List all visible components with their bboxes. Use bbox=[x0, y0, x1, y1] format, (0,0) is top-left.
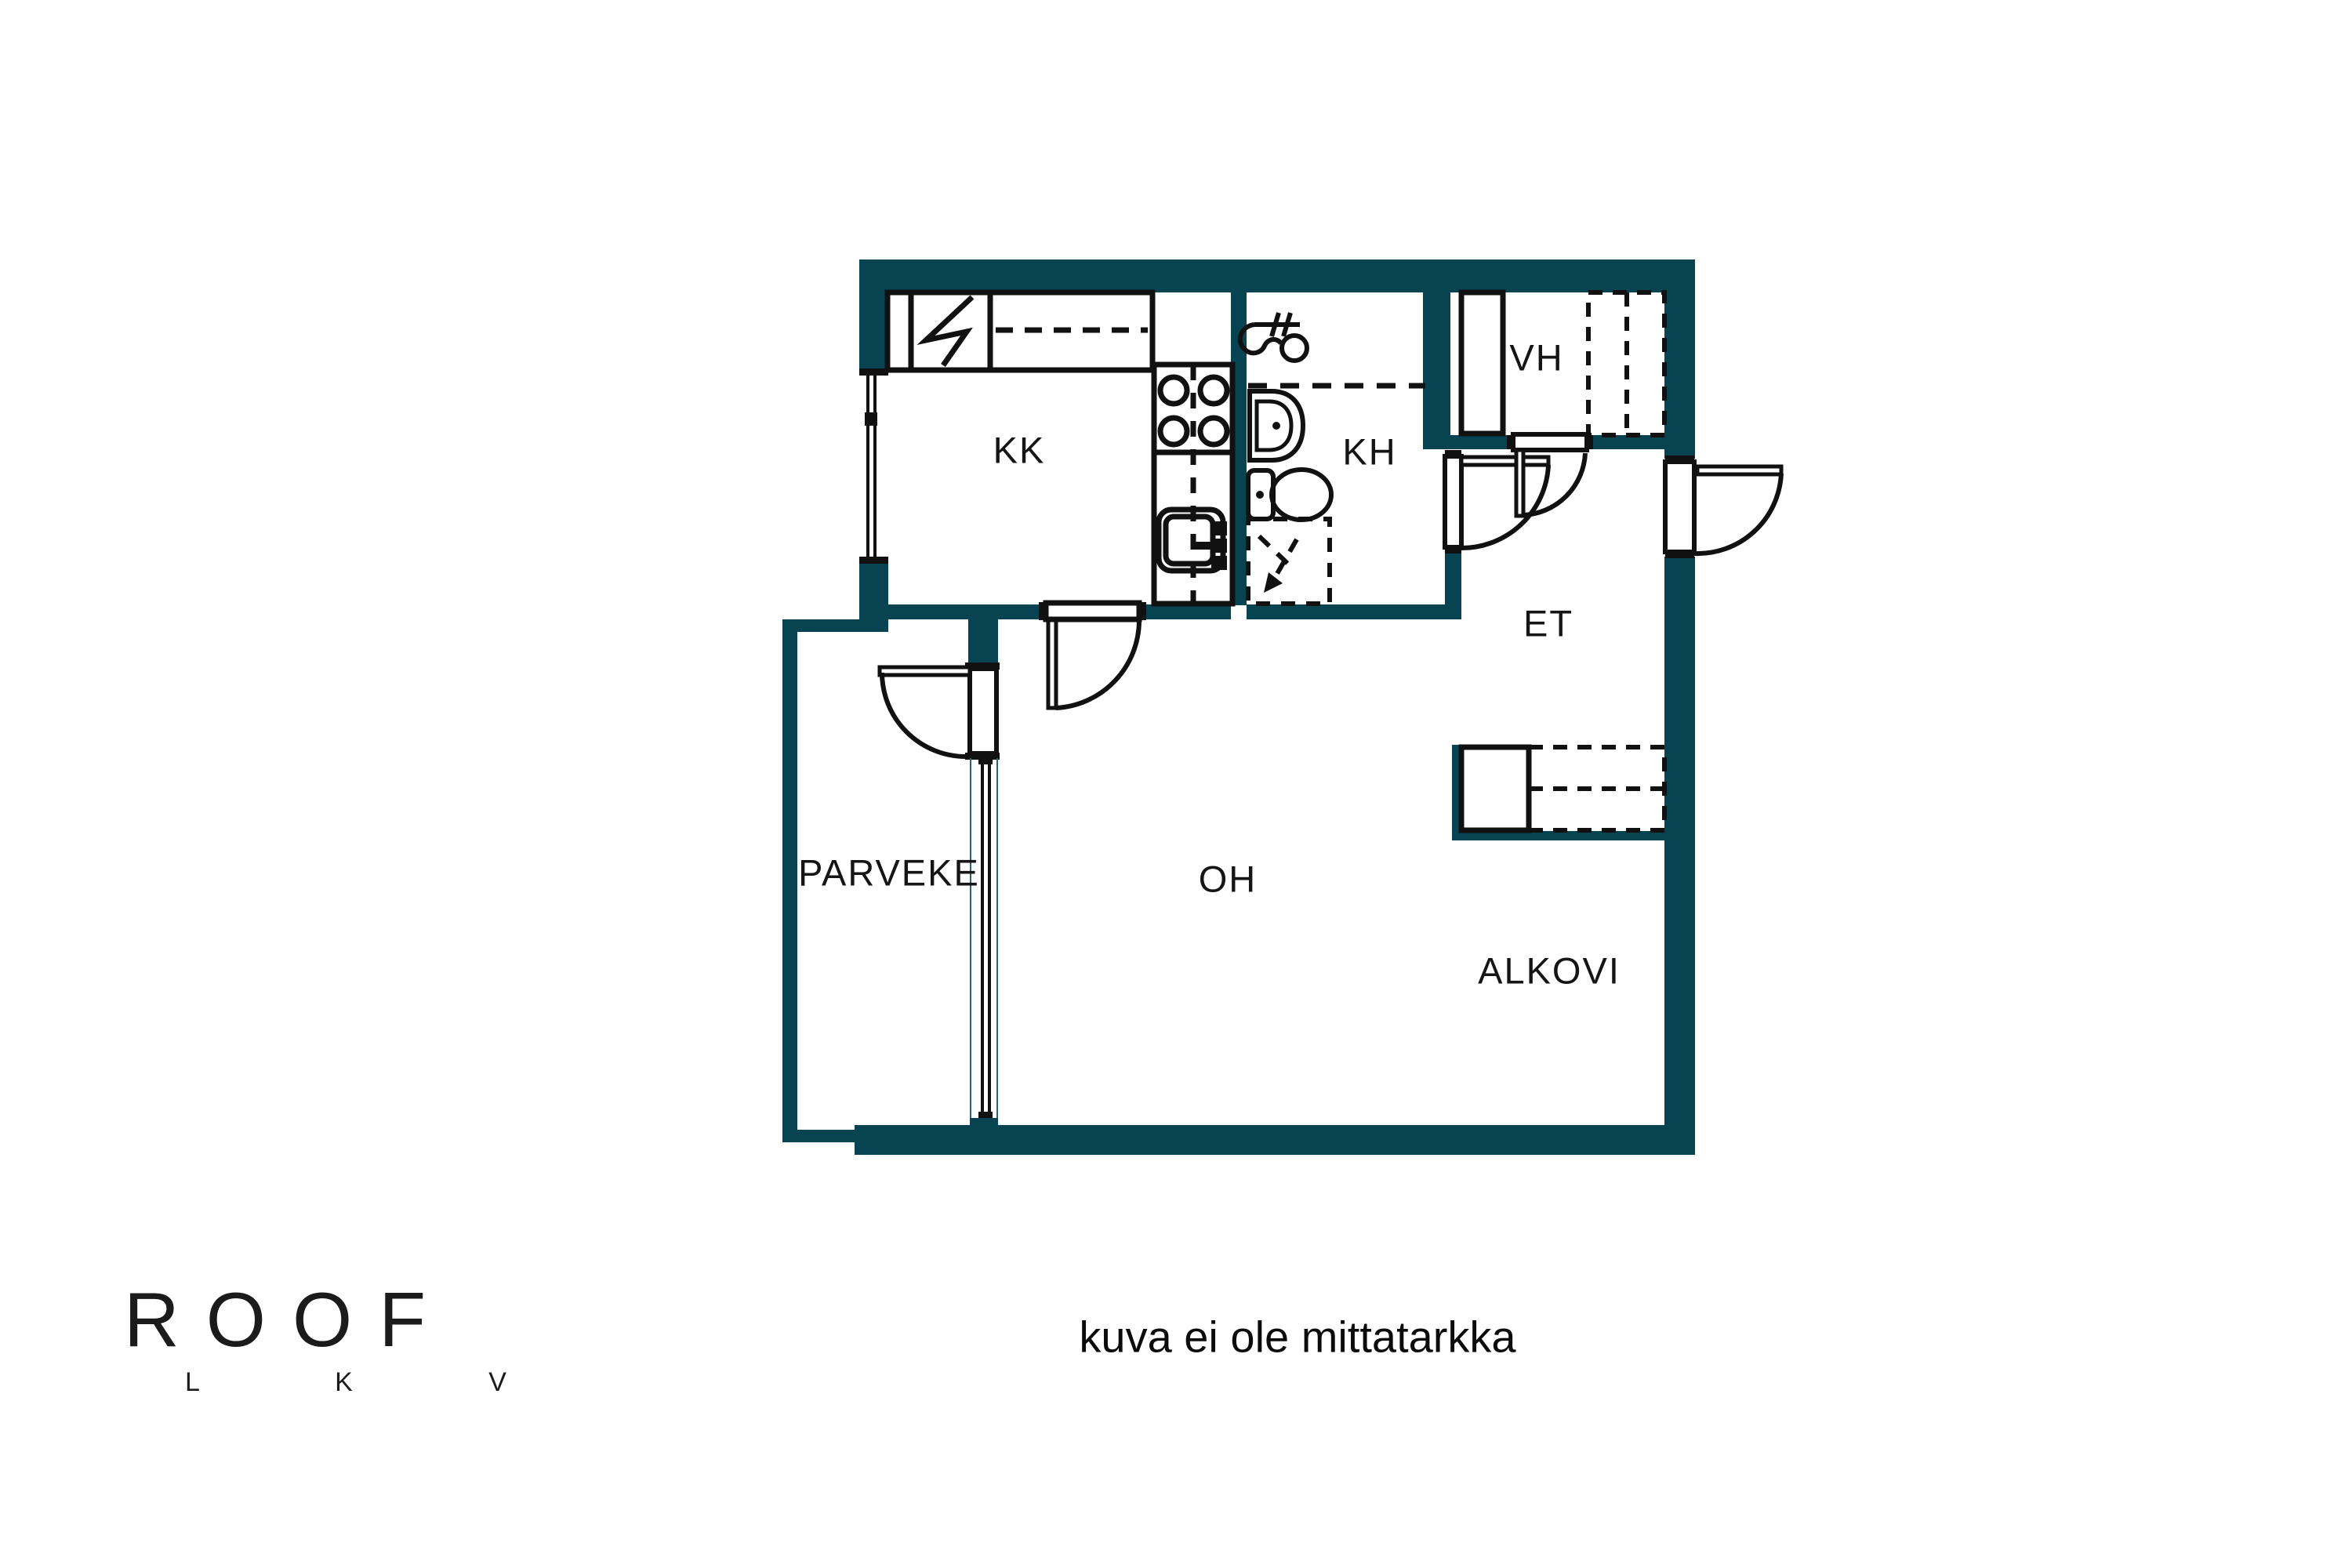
washing-machine-reservation-icon bbox=[1248, 519, 1330, 604]
door-swing-arc bbox=[1056, 620, 1139, 708]
window-balcony-icon bbox=[971, 758, 997, 1118]
room-label-vh: VH bbox=[1509, 336, 1563, 379]
toilet-icon bbox=[1248, 470, 1331, 520]
room-label-et: ET bbox=[1523, 602, 1573, 645]
washbasin-icon bbox=[1250, 391, 1303, 460]
front-door bbox=[1665, 456, 1781, 558]
room-label-oh: OH bbox=[1199, 858, 1258, 901]
door-swing-arc bbox=[1694, 474, 1781, 554]
door-balcony bbox=[880, 662, 1000, 760]
room-label-alkovi: ALKOVI bbox=[1478, 949, 1621, 993]
door-kk-oh bbox=[1039, 602, 1146, 708]
roof-lkv-logo: ROOF L K V bbox=[124, 1281, 571, 1396]
room-label-kh: KH bbox=[1342, 430, 1396, 474]
kitchen-counter bbox=[1154, 365, 1232, 604]
room-label-parveke: PARVEKE bbox=[798, 851, 980, 895]
door-swing-arc bbox=[882, 673, 966, 757]
wardrobe-alkovi bbox=[1461, 747, 1664, 830]
kitchen-cabinet-row bbox=[887, 292, 1152, 370]
fridge-zigzag-icon bbox=[926, 297, 972, 365]
door-vh-et bbox=[1507, 434, 1593, 516]
disclaimer-text: kuva ei ole mittatarkka bbox=[1079, 1312, 1515, 1363]
logo-sub-text: L K V bbox=[185, 1369, 571, 1396]
floor-plan-page: KK KH VH ET OH ALKOVI PARVEKE kuva ei ol… bbox=[0, 0, 2352, 1568]
door-kh-et bbox=[1445, 450, 1548, 554]
shower-mixer-icon bbox=[1240, 313, 1307, 361]
room-label-kk: KK bbox=[993, 429, 1046, 472]
logo-brand-text: ROOF bbox=[124, 1281, 571, 1358]
door-swing-arc bbox=[1459, 465, 1548, 548]
window-kk-icon bbox=[859, 368, 888, 564]
